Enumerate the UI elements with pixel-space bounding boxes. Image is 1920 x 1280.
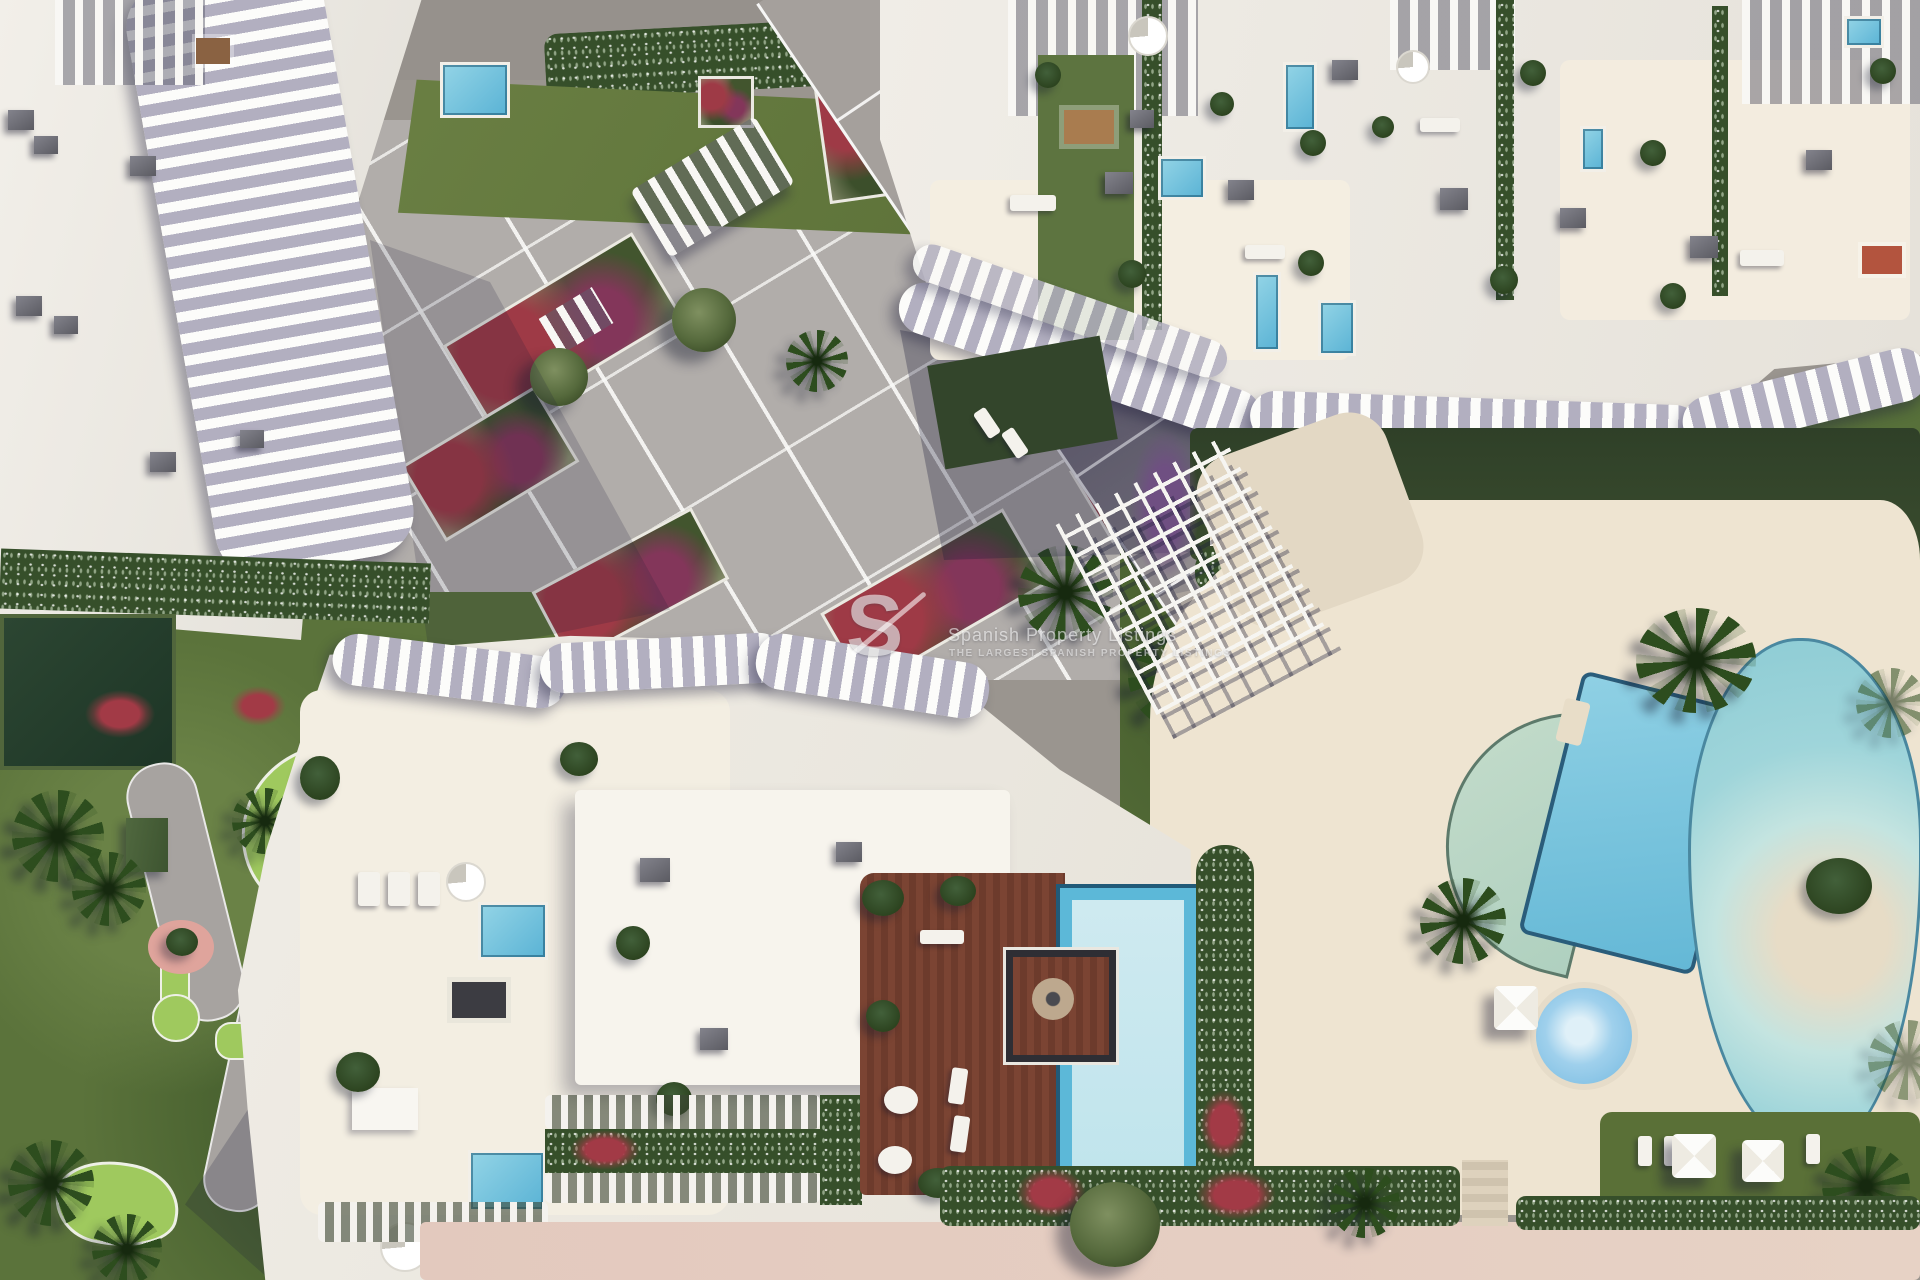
watermark-logo: S [846, 576, 941, 676]
terrace-planter [300, 756, 340, 800]
roof-planter [1640, 140, 1666, 166]
rooftop-ac-unit [150, 452, 176, 472]
rooftop-ac-unit [1440, 188, 1468, 210]
jacuzzi [1530, 982, 1638, 1090]
rooftop-ac-unit [1560, 208, 1586, 228]
rooftop-ac-unit [130, 156, 156, 176]
roof-lounge-sofa [1010, 195, 1056, 211]
red-flower-patch [85, 690, 155, 738]
roof-red-dining-set [1862, 246, 1902, 274]
deck-daybed-round [878, 1146, 912, 1174]
putting-green-bulb [152, 994, 200, 1042]
watermark-tagline: THE LARGEST SPANISH PROPERTY LISTINGS [949, 648, 1232, 659]
lawn-lounger [1638, 1136, 1652, 1166]
white-parasol [1742, 1140, 1784, 1182]
rooftop-plunge-pool [1580, 126, 1606, 172]
watermark-title: Spanish Property Listings [948, 625, 1177, 646]
fence-row-planting [820, 1095, 862, 1205]
roof-planter [1490, 266, 1518, 294]
terrace-lounger [418, 872, 440, 906]
terrace-planter [560, 742, 598, 776]
balcony-fence-row [545, 1173, 820, 1203]
roof-planter [1372, 116, 1394, 138]
rooftop-ac-unit [836, 842, 862, 862]
rooftop-ac-unit [54, 316, 78, 334]
terrace-dining-table-white [352, 1088, 418, 1130]
roof-wood-dining-table [1064, 110, 1114, 144]
red-flower-patch [230, 686, 286, 726]
palm-tree [786, 330, 848, 392]
lagoon-island-planting [1806, 858, 1872, 914]
roof-planter [1660, 283, 1686, 309]
rooftop-ac-unit [16, 296, 42, 316]
roof-planter [1035, 62, 1061, 88]
roof-planter [1870, 58, 1896, 84]
rooftop-ac-unit [700, 1028, 728, 1050]
deck-planter [866, 1000, 900, 1032]
roof-lounge-sofa [1420, 118, 1460, 132]
rooftop-ac-unit [1806, 150, 1832, 170]
rooftop-ac-unit [1332, 60, 1358, 80]
white-parasol [1494, 986, 1538, 1030]
terrace-lounger [388, 872, 410, 906]
rooftop-plunge-pool [1158, 156, 1206, 200]
south-pink-walkway [420, 1222, 1920, 1280]
palm-tree [1636, 608, 1756, 713]
balcony-fence-row [545, 1095, 820, 1129]
garden-plunge-pool [440, 62, 510, 118]
rooftop-ac-unit [1105, 172, 1133, 194]
palm-shadow-on-water [1856, 668, 1920, 738]
roof-pergola [1742, 0, 1920, 104]
rooftop-ac-unit [1690, 236, 1718, 258]
roof-lounge-sofa [1245, 245, 1285, 259]
terrace-dining-table-dark [452, 982, 506, 1018]
walkway-steps [1462, 1160, 1508, 1226]
lawn-lounger [1806, 1134, 1820, 1164]
rooftop-ac-unit [1228, 180, 1254, 200]
deck-planter [940, 876, 976, 906]
spiral-staircase [1396, 50, 1430, 84]
red-flower-patch [1200, 1090, 1248, 1160]
palm-tree [92, 1214, 162, 1280]
roof-planter [1298, 250, 1324, 276]
deck-planter [862, 880, 904, 916]
rooftop-plunge-pool [1844, 16, 1884, 48]
rooftop-ac-unit [240, 430, 264, 448]
rooftop-ac-unit [1130, 110, 1154, 128]
roof-dining-table [196, 38, 230, 64]
deck-round-rug [1032, 978, 1074, 1020]
roof-planter [1520, 60, 1546, 86]
palm-tree [1330, 1168, 1400, 1238]
deck-daybed-round [884, 1086, 918, 1114]
rooftop-plunge-pool [1318, 300, 1356, 356]
watermark-logo-letter: S [846, 578, 903, 674]
rooftop-ac-unit [34, 136, 58, 154]
rooftop-ac-unit [640, 858, 670, 882]
red-flower-patch [1196, 1170, 1276, 1220]
terrace-plunge-pool [478, 902, 548, 960]
walkway-tree [1070, 1182, 1160, 1267]
deck-bench [920, 930, 964, 944]
palm-tree [72, 852, 146, 926]
terrace-planter [616, 926, 650, 960]
aerial-render-scene: S Spanish Property Listings THE LARGEST … [0, 0, 1920, 1280]
white-parasol [1672, 1134, 1716, 1178]
palm-tree [1420, 878, 1506, 964]
garden-bush [166, 928, 198, 956]
northwest-roof-pergola [55, 0, 205, 85]
rooftop-ac-unit [8, 110, 34, 130]
palm-tree [8, 1140, 94, 1226]
roof-planter [1210, 92, 1234, 116]
roof-planter [1118, 260, 1146, 288]
rooftop-plunge-pool [1253, 272, 1281, 352]
rooftop-plunge-pool [1283, 62, 1317, 132]
roof-planter [1300, 130, 1326, 156]
roof-lounge-sofa [1740, 250, 1784, 266]
terrace-lounger [358, 872, 380, 906]
terrace-planter [336, 1052, 380, 1092]
red-flower-patch [570, 1130, 640, 1170]
spiral-staircase [446, 862, 486, 902]
courtyard-planting-seam [1496, 0, 1514, 300]
olive-tree [672, 288, 736, 352]
spiral-staircase [1128, 16, 1168, 56]
south-walkway-hedge [1516, 1196, 1920, 1230]
